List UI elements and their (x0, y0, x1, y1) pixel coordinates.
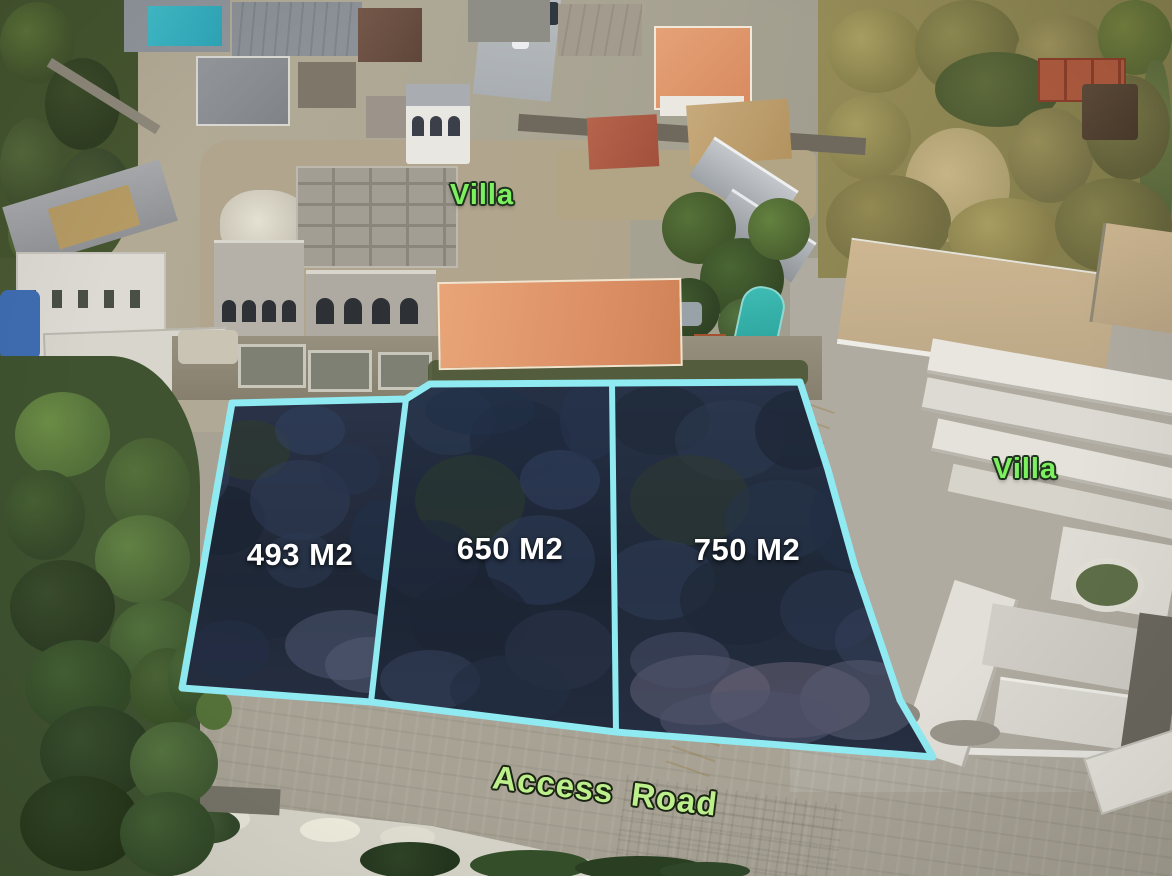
villa-label-right: Villa (993, 453, 1057, 486)
plot-3-area-label: 750 M2 (659, 532, 835, 568)
aerial-photo: Villa Villa 493 M2 650 M2 750 M2 Access … (0, 0, 1172, 876)
plot-overlay (0, 0, 1172, 876)
plot-1-area-label: 493 M2 (212, 537, 388, 573)
villa-label-top: Villa (450, 179, 514, 212)
plot-divider-2 (612, 383, 616, 732)
plot-2-area-label: 650 M2 (422, 531, 598, 567)
